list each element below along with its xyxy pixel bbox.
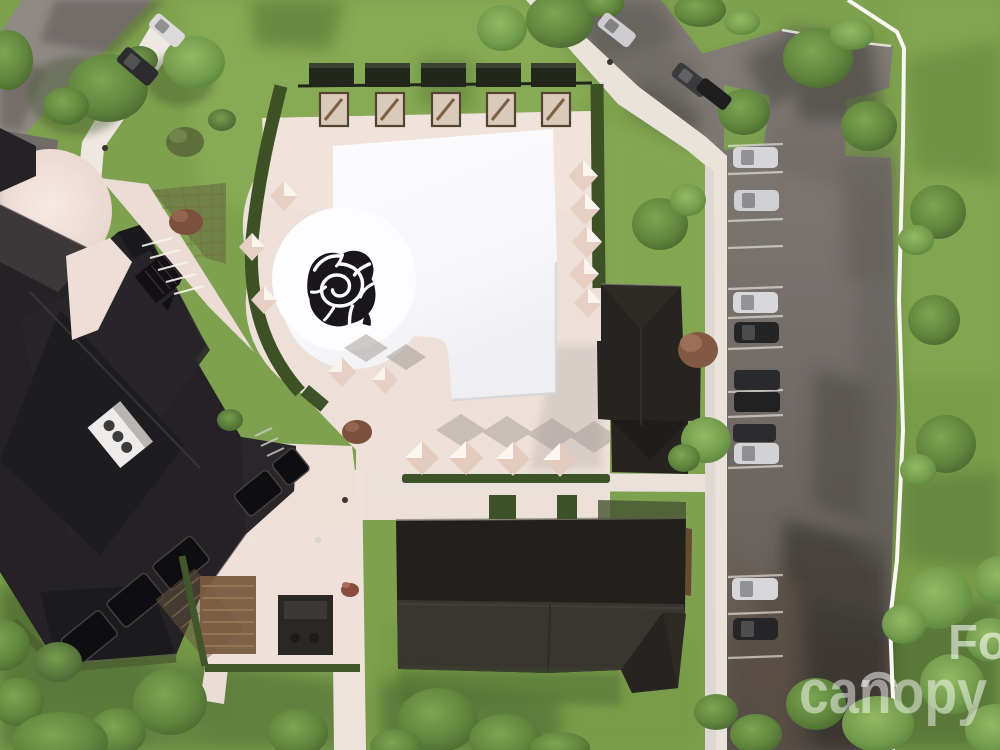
svg-text:Fo: Fo (948, 616, 1000, 670)
